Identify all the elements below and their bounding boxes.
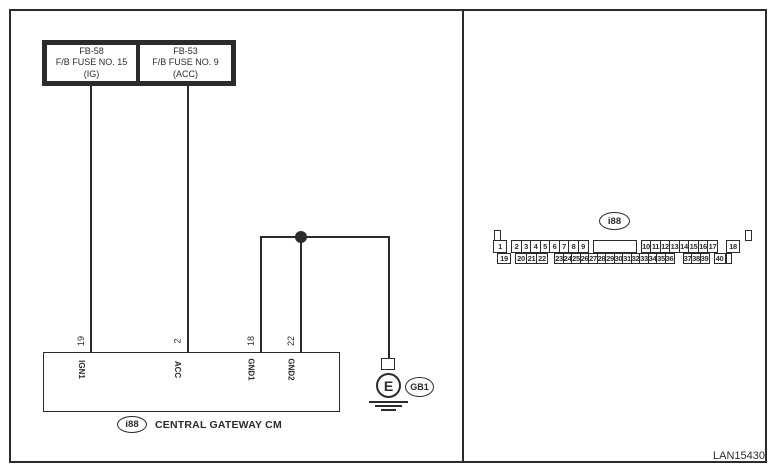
ground-hatch-line (369, 401, 408, 403)
fuse-name-label: F/B FUSE NO. 9 (152, 57, 219, 69)
connector-id-oval: i88 (117, 416, 147, 433)
connector-pin-cell: 19 (497, 253, 511, 264)
connector-blank-cell (726, 253, 732, 264)
pin-name-label: IGN1 (73, 356, 89, 382)
connector-pin-cell: 22 (536, 253, 548, 264)
connector-pin-cell: 18 (726, 240, 740, 253)
pin-name-label: GND2 (283, 356, 299, 382)
connector-pin-cell: 36 (665, 253, 675, 264)
junction-dot (295, 231, 307, 243)
pin-number-label: 22 (283, 331, 299, 351)
pin-name-label: GND1 (243, 356, 259, 382)
wire-gnd1 (260, 236, 262, 352)
pin-name-label: ACC (170, 356, 186, 382)
connector-id-label: i88 (125, 419, 138, 430)
wire-ign1 (90, 86, 92, 352)
connector-bottom-row: 1920212223242526272829303132333435363738… (497, 253, 732, 264)
pin-group: 1 (493, 240, 507, 253)
connector-id-oval: i88 (599, 212, 630, 230)
pin-group: 19 (497, 253, 511, 264)
pin-group: 2324252627282930313233343536 (554, 253, 675, 264)
ground-symbol-letter: E (384, 378, 393, 394)
fuse-box-fb58: FB-58 F/B FUSE NO. 15 (IG) (47, 45, 136, 81)
wire-gnd2 (300, 237, 302, 352)
connector-pin-cell: 39 (700, 253, 710, 264)
pin-number-label: 19 (73, 331, 89, 351)
pin-group (726, 253, 732, 264)
pin-number-label: 2 (170, 331, 186, 351)
ground-id-label: GB1 (410, 382, 429, 392)
pin-group (593, 240, 637, 253)
panel-divider (462, 9, 464, 463)
fuse-id-label: FB-58 (79, 46, 104, 58)
fuse-circuit-label: (ACC) (173, 69, 198, 81)
connector-blank-cell (593, 240, 637, 253)
ground-hatch-line (375, 405, 402, 407)
ground-connector-square (381, 358, 395, 370)
connector-pin-cell: 1 (493, 240, 507, 253)
pin-group: 373839 (683, 253, 710, 264)
connector-pinout: 123456789101112131415161718 192021222324… (493, 230, 763, 265)
fuse-box-fb53: FB-53 F/B FUSE NO. 9 (ACC) (140, 45, 231, 81)
connector-pin-cell: 9 (578, 240, 589, 253)
pin-group: 23456789 (511, 240, 589, 253)
ground-id-oval: GB1 (405, 377, 434, 397)
fuse-box-group: FB-58 F/B FUSE NO. 15 (IG) FB-53 F/B FUS… (42, 40, 236, 86)
pin-group: 18 (726, 240, 740, 253)
pin-number-label: 18 (243, 331, 259, 351)
connector-pin-cell: 40 (714, 253, 726, 264)
ground-symbol-circle: E (376, 373, 401, 398)
diagram-code-label: LAN15430 (713, 450, 765, 462)
module-name-label: CENTRAL GATEWAY CM (155, 419, 282, 431)
connector-top-row: 123456789101112131415161718 (493, 240, 740, 253)
pin-group: 40 (714, 253, 726, 264)
pin-group: 202122 (515, 253, 548, 264)
pin-group: 1011121314151617 (641, 240, 719, 253)
wire-ground-bus (260, 236, 390, 238)
connector-tab-right (745, 230, 752, 241)
wire-ground-drop (388, 236, 390, 358)
connector-pin-cell: 17 (707, 240, 718, 253)
fuse-circuit-label: (IG) (84, 69, 100, 81)
connector-id-label: i88 (608, 216, 621, 227)
ground-hatch-line (381, 409, 396, 411)
fuse-id-label: FB-53 (173, 46, 198, 58)
wiring-diagram-page: FB-58 F/B FUSE NO. 15 (IG) FB-53 F/B FUS… (0, 0, 778, 475)
wire-acc (187, 86, 189, 352)
fuse-name-label: F/B FUSE NO. 15 (56, 57, 128, 69)
